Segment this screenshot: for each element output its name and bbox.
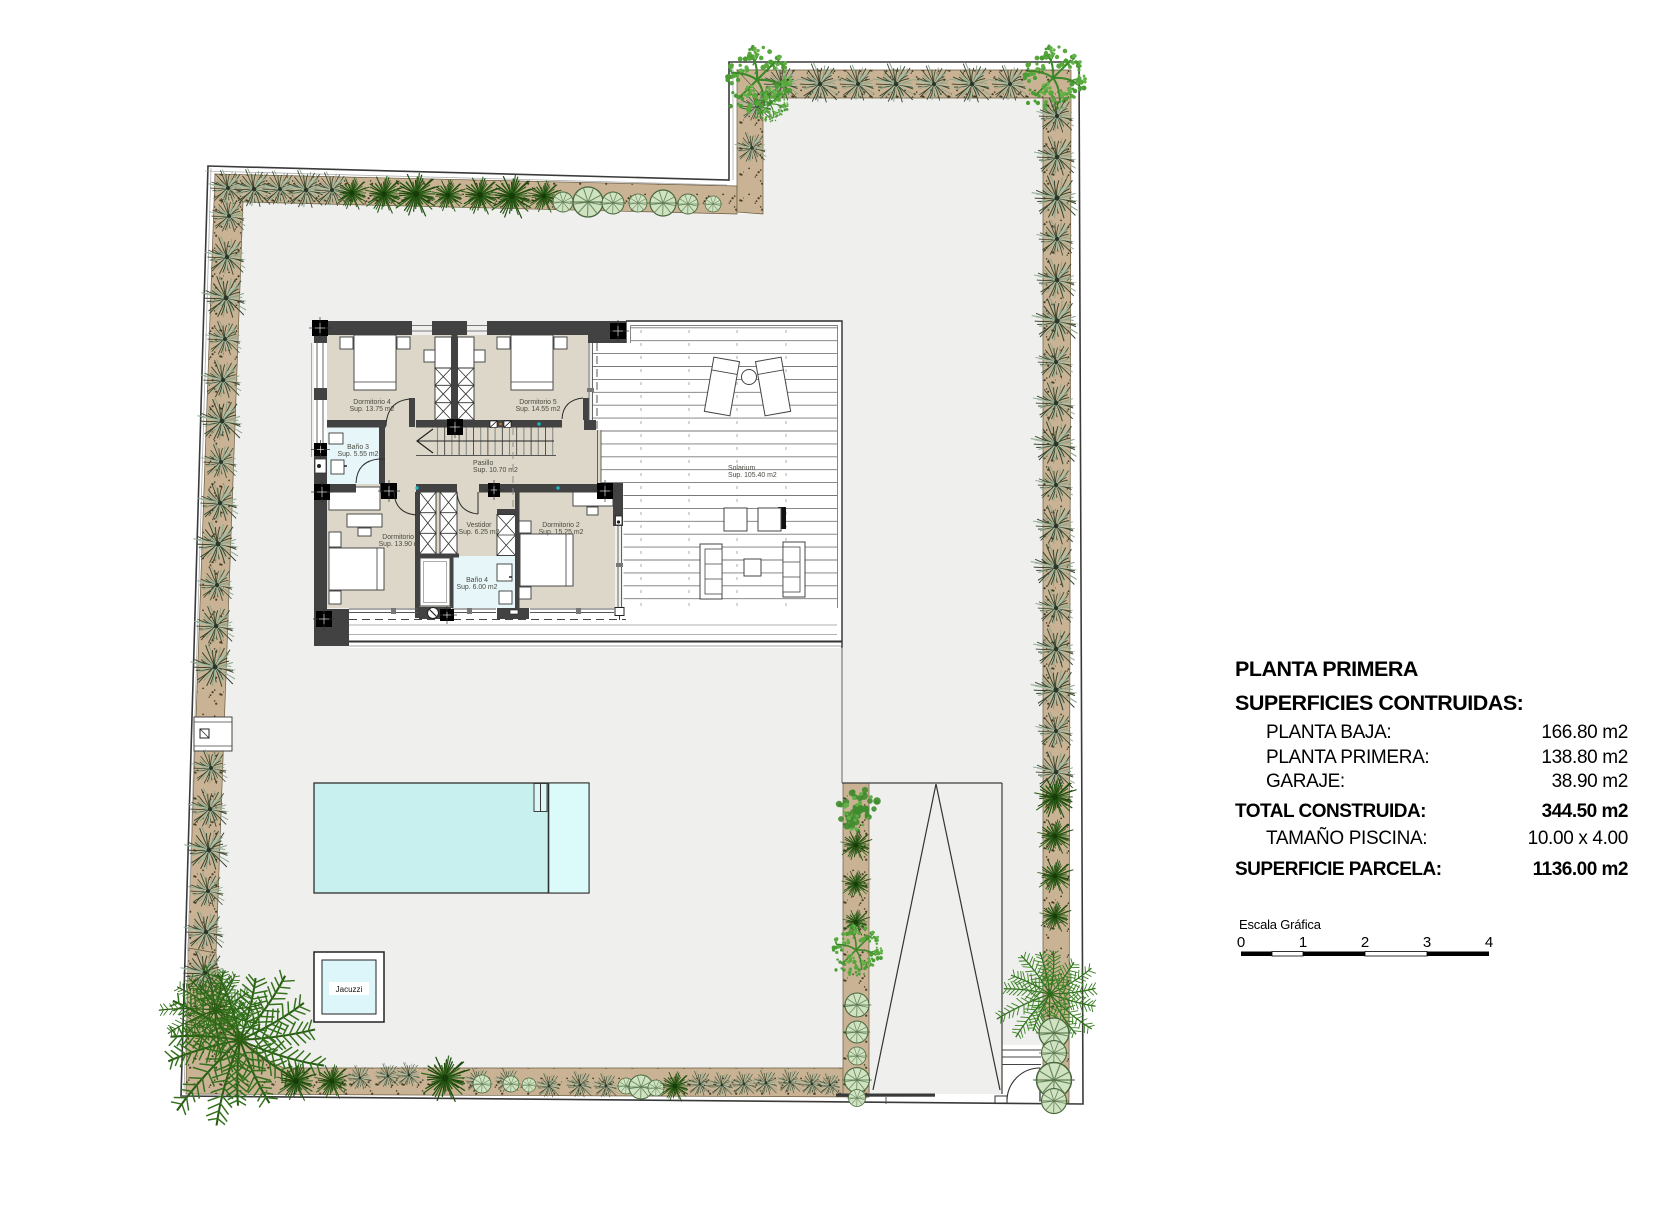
svg-text:SUPERFICIE PARCELA:: SUPERFICIE PARCELA: [1235, 859, 1442, 880]
svg-text:GARAJE:: GARAJE: [1266, 771, 1345, 792]
svg-text:Dormitorio 2: Dormitorio 2 [542, 522, 580, 529]
svg-text:3: 3 [1423, 934, 1431, 951]
svg-text:Dormitorio 3: Dormitorio 3 [382, 534, 420, 541]
svg-text:38.90 m2: 38.90 m2 [1552, 771, 1628, 792]
svg-text:Sup. 15.25 m2: Sup. 15.25 m2 [539, 529, 584, 536]
svg-text:Sup. 105.40 m2: Sup. 105.40 m2 [728, 472, 777, 479]
svg-text:Baño 4: Baño 4 [466, 577, 488, 584]
svg-text:1136.00 m2: 1136.00 m2 [1533, 859, 1628, 880]
svg-text:Escala Gráfica: Escala Gráfica [1239, 917, 1322, 932]
svg-text:Dormitorio 4: Dormitorio 4 [353, 399, 391, 406]
svg-text:1: 1 [1299, 934, 1307, 951]
svg-text:166.80 m2: 166.80 m2 [1541, 722, 1628, 743]
svg-text:344.50 m2: 344.50 m2 [1542, 801, 1628, 822]
svg-text:Sup. 14.55 m2: Sup. 14.55 m2 [516, 406, 561, 413]
svg-text:PLANTA BAJA:: PLANTA BAJA: [1266, 722, 1391, 743]
svg-text:Sup. 5.55 m2: Sup. 5.55 m2 [338, 451, 379, 458]
svg-text:Baño 3: Baño 3 [347, 444, 369, 451]
svg-text:2: 2 [1361, 934, 1369, 951]
svg-text:Jacuzzi: Jacuzzi [336, 985, 363, 994]
svg-text:4: 4 [1485, 934, 1493, 951]
svg-text:PLANTA PRIMERA: PLANTA PRIMERA [1235, 657, 1418, 681]
svg-text:TAMAÑO PISCINA:: TAMAÑO PISCINA: [1266, 827, 1427, 849]
svg-text:PLANTA PRIMERA:: PLANTA PRIMERA: [1266, 747, 1429, 768]
svg-text:138.80 m2: 138.80 m2 [1541, 747, 1628, 768]
svg-text:Dormitorio 5: Dormitorio 5 [519, 399, 557, 406]
svg-text:Sup. 6.25 m2: Sup. 6.25 m2 [459, 529, 500, 536]
svg-text:Solarium: Solarium [728, 465, 755, 472]
svg-text:Vestidor: Vestidor [467, 522, 493, 529]
svg-text:Sup. 10.70 m2: Sup. 10.70 m2 [473, 467, 518, 474]
svg-text:Sup. 13.75 m2: Sup. 13.75 m2 [350, 406, 395, 413]
svg-text:0: 0 [1237, 934, 1245, 951]
svg-text:Sup. 6.00 m2: Sup. 6.00 m2 [457, 584, 498, 591]
svg-text:SUPERFICIES CONTRUIDAS:: SUPERFICIES CONTRUIDAS: [1235, 691, 1523, 715]
svg-text:TOTAL CONSTRUIDA:: TOTAL CONSTRUIDA: [1235, 801, 1426, 822]
svg-text:10.00 x 4.00: 10.00 x 4.00 [1528, 828, 1628, 849]
svg-text:Pasillo: Pasillo [473, 460, 493, 467]
